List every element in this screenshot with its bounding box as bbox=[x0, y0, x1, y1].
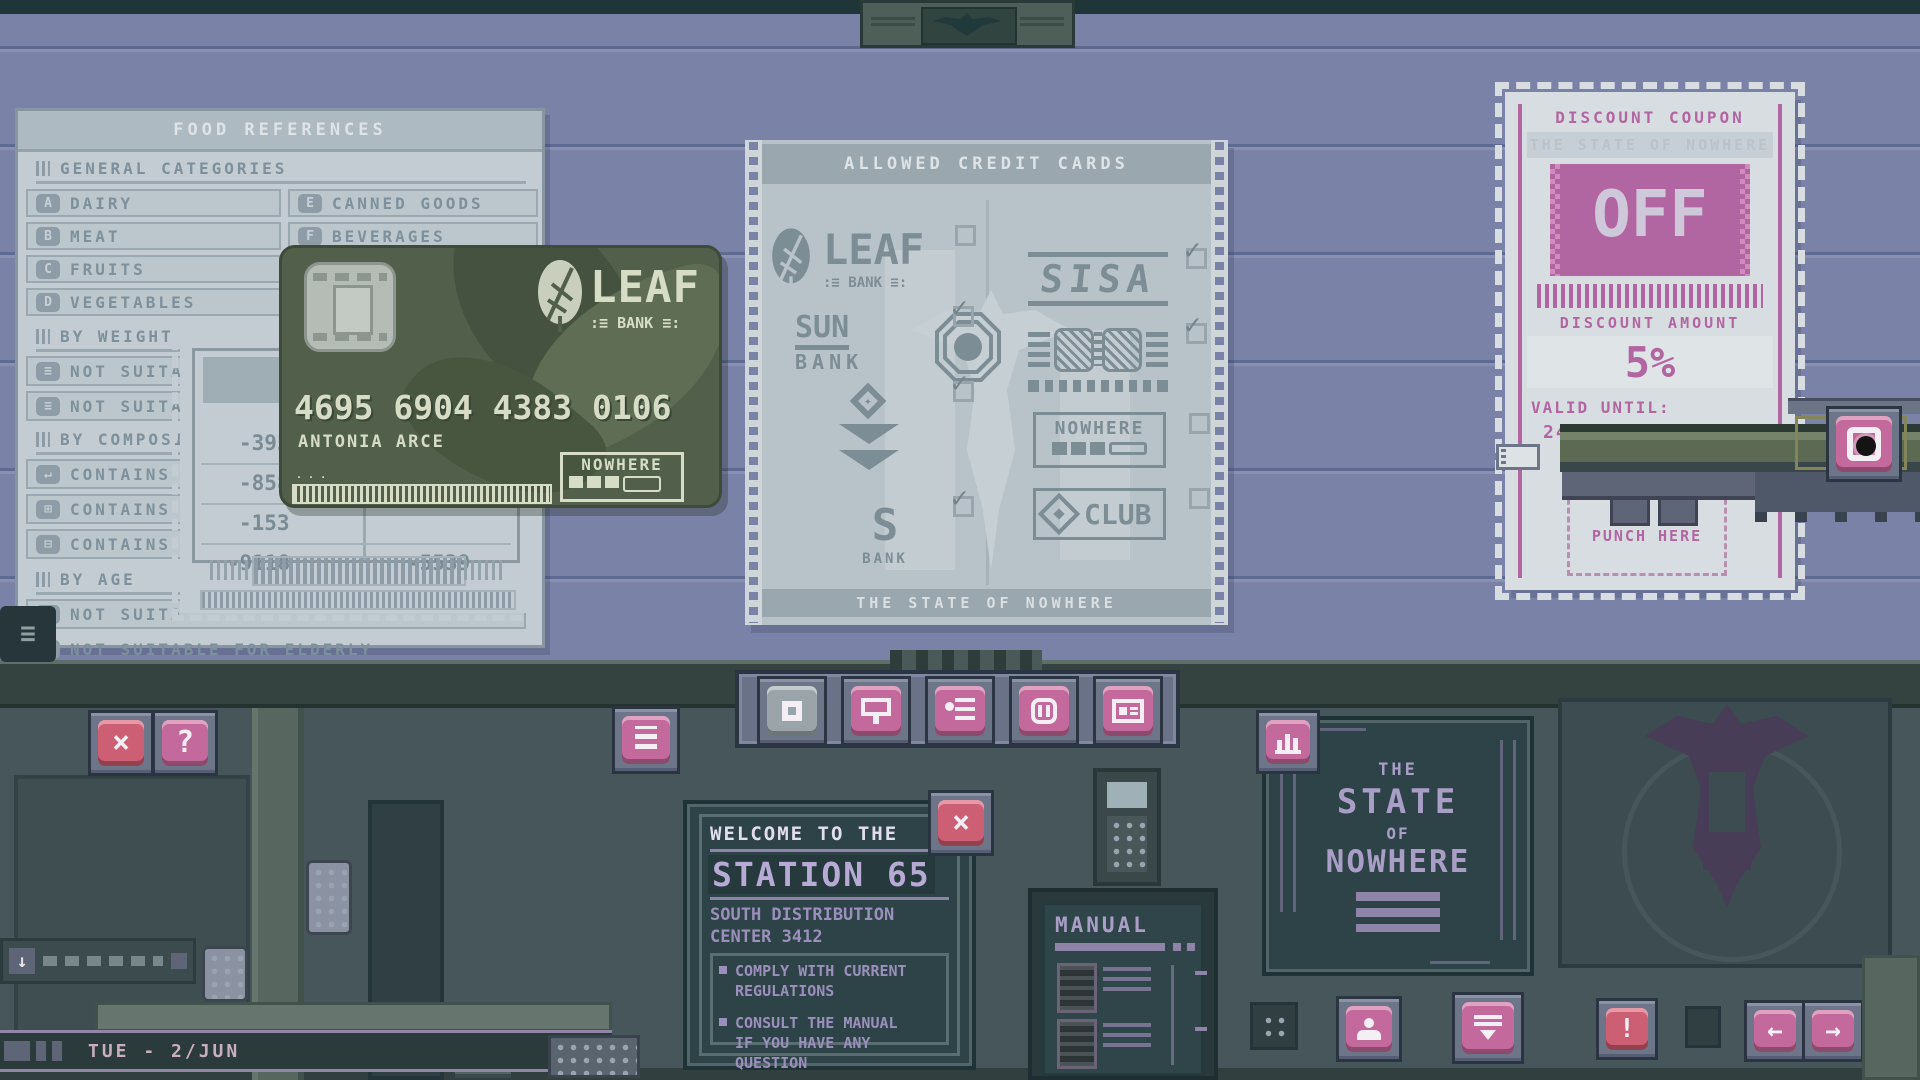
menu-icon: ≡ bbox=[36, 362, 60, 381]
sign-icon bbox=[861, 698, 891, 724]
rule-text: QUESTION bbox=[735, 1054, 807, 1072]
eagle-panel bbox=[1558, 698, 1892, 968]
arrow-left-icon: ← bbox=[1767, 1018, 1783, 1044]
coupon-title: DISCOUNT COUPON bbox=[1505, 108, 1795, 127]
poster-logo-goggles bbox=[1028, 328, 1168, 400]
date-display: TUE - 2/JUN bbox=[88, 1041, 240, 1062]
card-holder-name: ANTONIA ARCE bbox=[298, 432, 445, 452]
poster-logo-s-bank: S BANK bbox=[845, 500, 925, 580]
station-subtitle: CENTER 3412 bbox=[710, 927, 823, 947]
barcode bbox=[200, 590, 516, 610]
emblem-wing-detail bbox=[871, 17, 915, 29]
category-chip: B bbox=[36, 227, 60, 246]
barcode bbox=[210, 560, 250, 580]
next-button[interactable]: → bbox=[1802, 1000, 1864, 1062]
menu-icon: ≡ bbox=[36, 397, 60, 416]
card-nowhere-badge: NOWHERE bbox=[560, 452, 684, 502]
category-chip: D bbox=[36, 293, 60, 312]
rule-text: IF YOU HAVE ANY bbox=[735, 1034, 870, 1052]
wall-clip: ≡ bbox=[0, 606, 56, 662]
food-references-title: FOOD REFERENCES bbox=[173, 120, 387, 140]
return-icon: ↵ bbox=[36, 465, 60, 484]
rule-text: REGULATIONS bbox=[735, 982, 834, 1000]
section-icon bbox=[36, 161, 50, 176]
poster-logo-diamond: ✦ bbox=[833, 388, 913, 483]
section-label: GENERAL CATEGORIES bbox=[60, 159, 287, 178]
stop-button[interactable] bbox=[757, 676, 827, 746]
checkbox-sisa: ✓ bbox=[1186, 248, 1207, 269]
section-label: BY WEIGHT bbox=[60, 327, 174, 346]
card-chip bbox=[304, 262, 396, 352]
coupon-off-text: OFF bbox=[1550, 178, 1750, 252]
bullet-icon bbox=[719, 966, 727, 974]
leaf-icon bbox=[765, 225, 817, 297]
poster-footer: THE STATE OF NOWHERE bbox=[762, 589, 1211, 617]
keypad bbox=[202, 946, 248, 1002]
manual-page-thumb[interactable] bbox=[1057, 1019, 1097, 1069]
pause-button[interactable] bbox=[1009, 676, 1079, 746]
section-label: BY COMPOSI bbox=[60, 430, 186, 449]
welcome-intro: WELCOME TO THE bbox=[710, 823, 898, 845]
console-teeth bbox=[890, 650, 1042, 672]
status-bar: TUE - 2/JUN bbox=[0, 1030, 612, 1072]
card-bank-name: LEAF bbox=[590, 262, 700, 313]
checkbox-club bbox=[1189, 488, 1210, 509]
card-barcode bbox=[292, 484, 552, 504]
x-icon: × bbox=[952, 808, 970, 838]
food-row-meat: BMEAT bbox=[26, 222, 281, 250]
rule-text: COMPLY WITH CURRENT bbox=[735, 962, 907, 980]
conveyor-控制strip: ↓ bbox=[0, 938, 196, 984]
hand-list-icon bbox=[945, 698, 975, 724]
prev-button[interactable]: ← bbox=[1744, 1000, 1806, 1062]
section-label: BY AGE bbox=[60, 570, 136, 589]
receipt-value: -153 bbox=[239, 511, 290, 535]
tray-arrow-icon bbox=[1474, 1015, 1502, 1041]
side-panel bbox=[1862, 955, 1920, 1080]
food-row-vegetables: DVEGETABLES bbox=[26, 288, 281, 316]
socket bbox=[1250, 1002, 1298, 1050]
card-number: 4695 6904 4383 0106 bbox=[294, 388, 672, 427]
alert-button[interactable]: ! bbox=[1596, 998, 1658, 1060]
welcome-close-button[interactable]: × bbox=[928, 790, 994, 856]
exclamation-icon: ! bbox=[1619, 1016, 1635, 1042]
document-button[interactable] bbox=[612, 706, 680, 774]
bullet-icon bbox=[719, 1018, 727, 1026]
checkbox-diamond: ✓ bbox=[953, 381, 974, 402]
arrow-right-icon: → bbox=[1825, 1018, 1841, 1044]
keypad bbox=[306, 860, 352, 935]
allowed-credit-cards-poster[interactable]: ALLOWED CREDIT CARDS LEAF :≡ BANK ≡: SUN… bbox=[745, 140, 1228, 625]
category-chip: F bbox=[298, 227, 322, 246]
section-icon bbox=[36, 572, 50, 587]
poster-logo-club: CLUB bbox=[1033, 488, 1166, 540]
section-icon bbox=[36, 329, 50, 344]
vent-pad bbox=[548, 1035, 640, 1078]
poster-logo-leaf-bank: LEAF :≡ BANK ≡: bbox=[765, 225, 965, 305]
poster-perforation bbox=[745, 140, 762, 625]
barcode bbox=[252, 556, 466, 586]
help-button[interactable]: ? bbox=[152, 710, 218, 776]
document-icon bbox=[635, 726, 657, 754]
stats-button[interactable] bbox=[1256, 710, 1320, 774]
checkbox-s-bank: ✓ bbox=[953, 496, 974, 517]
manual-panel[interactable]: MANUAL bbox=[1028, 888, 1218, 1080]
grid-icon: ⊞ bbox=[36, 500, 60, 519]
cursor bbox=[1856, 436, 1876, 456]
category-chip: C bbox=[36, 260, 60, 279]
emblem-wing-detail bbox=[1020, 17, 1064, 29]
id-card-button[interactable] bbox=[1093, 676, 1163, 746]
station-title: STATION 65 bbox=[708, 855, 935, 894]
poster-header: ALLOWED CREDIT CARDS bbox=[762, 144, 1211, 184]
coupon-amount-value: 5% bbox=[1625, 338, 1676, 387]
bar-chart-icon bbox=[1275, 730, 1301, 754]
arm-head bbox=[1562, 472, 1755, 500]
arm-punch-pin bbox=[1610, 500, 1650, 526]
poster-perforation bbox=[1211, 140, 1228, 625]
food-references-header: FOOD REFERENCES bbox=[18, 111, 542, 152]
plaque-state: STATE bbox=[1266, 782, 1530, 822]
coupon-subtitle: THE STATE OF NOWHERE bbox=[1530, 136, 1771, 154]
coupon-punch-label: PUNCH HERE bbox=[1570, 527, 1724, 545]
category-chip: E bbox=[298, 194, 322, 213]
checkbox-nowhere bbox=[1189, 413, 1210, 434]
arm-punch-pin bbox=[1658, 500, 1698, 526]
slot bbox=[1685, 1006, 1721, 1048]
stop-icon bbox=[782, 701, 802, 721]
minus-box-icon: ⊟ bbox=[36, 535, 60, 554]
plaque-bars bbox=[1356, 892, 1440, 932]
food-row-canned-goods: ECANNED GOODS bbox=[288, 189, 538, 217]
checkbox-leaf bbox=[955, 225, 976, 246]
section-general-categories: GENERAL CATEGORIES bbox=[36, 155, 526, 184]
coupon-amount-label: DISCOUNT AMOUNT bbox=[1505, 314, 1795, 332]
coupon-clip bbox=[1496, 444, 1540, 470]
station-subtitle: SOUTH DISTRIBUTION bbox=[710, 905, 894, 925]
poster-logo-nowhere: NOWHERE bbox=[1033, 412, 1166, 468]
sign-button[interactable] bbox=[841, 676, 911, 746]
person-icon bbox=[1357, 1018, 1381, 1040]
eagle-emblem-icon bbox=[921, 7, 1017, 45]
section-icon bbox=[36, 432, 50, 447]
plaque-nowhere: NOWHERE bbox=[1266, 844, 1530, 880]
discount-coupon[interactable]: DISCOUNT COUPON THE STATE OF NOWHERE OFF… bbox=[1505, 92, 1795, 590]
manual-title: MANUAL bbox=[1055, 913, 1149, 937]
barcode bbox=[464, 560, 504, 580]
id-card-icon bbox=[1112, 699, 1144, 723]
checkbox-sun: ✓ bbox=[953, 306, 974, 327]
poster-logo-sisa: SISA bbox=[1028, 252, 1168, 312]
coupon-barcode bbox=[1537, 284, 1763, 308]
checkbox-goggles: ✓ bbox=[1186, 323, 1207, 344]
plaque-of: OF bbox=[1266, 824, 1530, 843]
question-icon: ? bbox=[176, 728, 194, 758]
rules-button[interactable] bbox=[925, 676, 995, 746]
credit-card[interactable]: LEAF :≡ BANK ≡: 4695 6904 4383 0106 ANTO… bbox=[279, 245, 722, 508]
pause-icon bbox=[1031, 698, 1057, 724]
leaf-bank-logo: LEAF :≡ BANK ≡: bbox=[532, 256, 712, 352]
intercom-device bbox=[1093, 768, 1161, 886]
device-screen bbox=[1107, 782, 1147, 808]
poster-title: ALLOWED CREDIT CARDS bbox=[844, 154, 1129, 174]
food-row-dairy: ADAIRY bbox=[26, 189, 281, 217]
coupon-off-block: OFF bbox=[1550, 164, 1750, 276]
conveyor-beam bbox=[95, 1002, 612, 1032]
profile-button[interactable] bbox=[1336, 996, 1402, 1062]
category-chip: A bbox=[36, 194, 60, 213]
game-scene: FOOD REFERENCES GENERAL CATEGORIES ADAIR… bbox=[0, 0, 1920, 1080]
ceiling-emblem-plate bbox=[860, 0, 1075, 48]
x-icon: × bbox=[112, 728, 130, 758]
card-bank-sub: :≡ BANK ≡: bbox=[590, 314, 680, 332]
food-row-fruits: CFRUITS bbox=[26, 255, 281, 283]
coupon-valid-label: VALID UNTIL: bbox=[1531, 398, 1671, 417]
poster-footer-text: THE STATE OF NOWHERE bbox=[856, 594, 1117, 612]
close-button-left[interactable]: × bbox=[88, 710, 154, 776]
rule-text: CONSULT THE MANUAL bbox=[735, 1014, 898, 1032]
arrow-down-icon: ↓ bbox=[9, 948, 35, 974]
manual-page-thumb[interactable] bbox=[1057, 963, 1097, 1013]
state-eagle-emblem bbox=[1637, 698, 1817, 912]
leaf-icon bbox=[532, 256, 588, 340]
device-keypad bbox=[1107, 816, 1147, 872]
eject-button[interactable] bbox=[1452, 992, 1524, 1064]
